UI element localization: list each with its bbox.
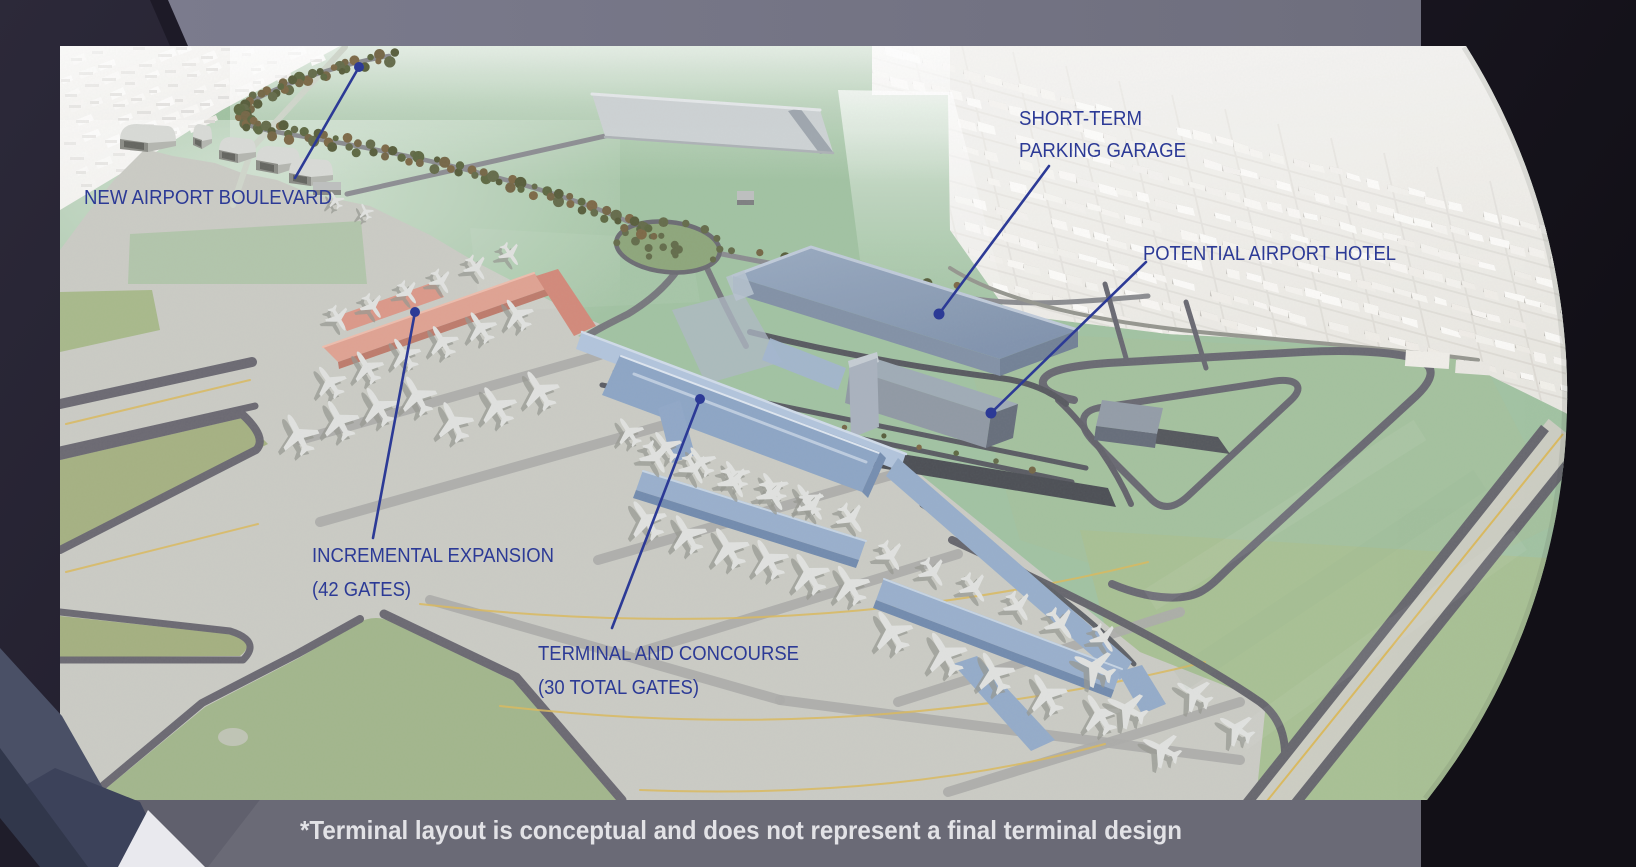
svg-text:NEW AIRPORT BOULEVARD: NEW AIRPORT BOULEVARD	[84, 187, 332, 209]
svg-text:SHORT-TERM: SHORT-TERM	[1019, 108, 1142, 130]
svg-text:PARKING GARAGE: PARKING GARAGE	[1019, 140, 1186, 162]
svg-text:*Terminal layout is conceptual: *Terminal layout is conceptual and does …	[300, 815, 1182, 845]
svg-text:(42 GATES): (42 GATES)	[312, 579, 411, 601]
svg-text:INCREMENTAL EXPANSION: INCREMENTAL EXPANSION	[312, 545, 554, 567]
svg-text:POTENTIAL AIRPORT HOTEL: POTENTIAL AIRPORT HOTEL	[1143, 243, 1396, 265]
svg-text:TERMINAL AND CONCOURSE: TERMINAL AND CONCOURSE	[538, 643, 799, 665]
svg-text:(30 TOTAL GATES): (30 TOTAL GATES)	[538, 677, 699, 699]
